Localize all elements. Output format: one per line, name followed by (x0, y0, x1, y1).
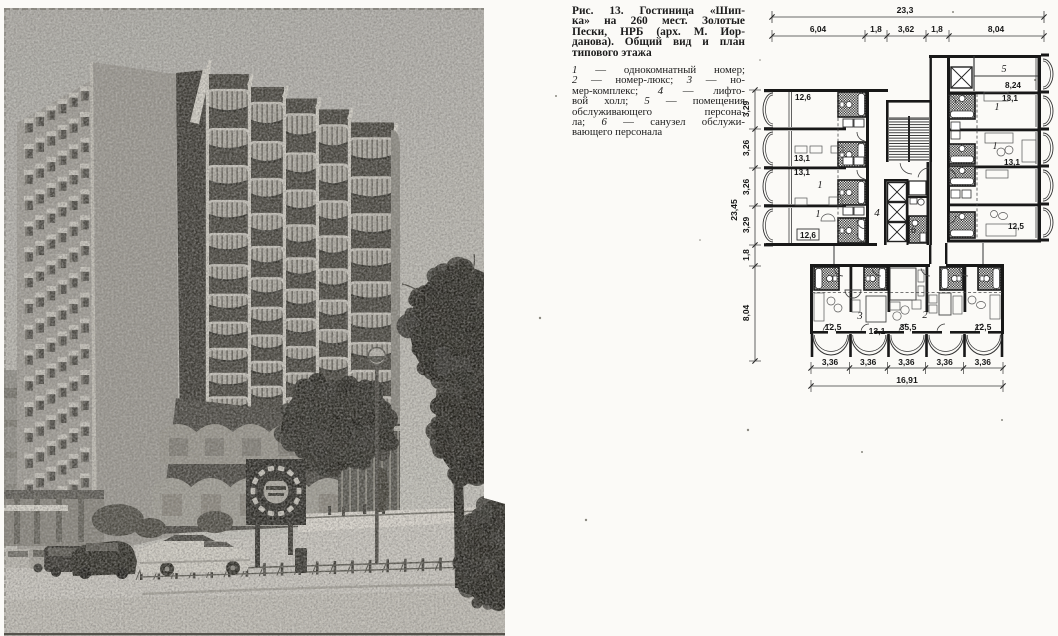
svg-text:4: 4 (874, 207, 880, 219)
svg-text:8,04: 8,04 (988, 24, 1005, 34)
svg-text:3,36: 3,36 (822, 357, 839, 367)
svg-text:1: 1 (995, 102, 1000, 113)
svg-text:3,29: 3,29 (741, 101, 751, 118)
svg-text:1,8: 1,8 (931, 24, 943, 34)
svg-text:3,26: 3,26 (741, 179, 751, 196)
svg-text:8,24: 8,24 (1005, 81, 1021, 90)
svg-text:12,6: 12,6 (800, 231, 816, 240)
svg-text:3,36: 3,36 (936, 357, 953, 367)
svg-text:6,04: 6,04 (810, 24, 827, 34)
svg-text:13,1: 13,1 (869, 326, 886, 336)
svg-text:1,8: 1,8 (741, 249, 751, 261)
svg-text:1,8: 1,8 (870, 24, 882, 34)
svg-text:23,3: 23,3 (897, 5, 914, 15)
svg-text:16,91: 16,91 (896, 375, 918, 385)
svg-text:1: 1 (816, 209, 821, 220)
svg-text:13,1: 13,1 (1004, 158, 1020, 167)
svg-text:3,62: 3,62 (898, 24, 915, 34)
svg-text:3,29: 3,29 (741, 217, 751, 234)
svg-text:3,36: 3,36 (898, 357, 915, 367)
svg-text:3,36: 3,36 (860, 357, 877, 367)
svg-text:35,5: 35,5 (900, 322, 917, 332)
svg-text:12,6: 12,6 (795, 93, 811, 102)
svg-text:13,1: 13,1 (794, 168, 810, 177)
svg-text:3,36: 3,36 (975, 357, 992, 367)
svg-text:1: 1 (818, 180, 823, 191)
svg-text:2: 2 (922, 310, 928, 321)
svg-text:6: 6 (911, 225, 916, 236)
svg-text:23,45: 23,45 (729, 199, 739, 221)
svg-text:8,04: 8,04 (741, 305, 751, 322)
svg-text:1: 1 (993, 141, 998, 152)
svg-text:3: 3 (856, 311, 862, 322)
svg-text:13,1: 13,1 (794, 154, 810, 163)
svg-text:12,5: 12,5 (975, 322, 992, 332)
svg-text:5: 5 (1002, 64, 1007, 75)
svg-text:12,5: 12,5 (825, 322, 842, 332)
svg-text:13,1: 13,1 (1002, 94, 1018, 103)
svg-text:3,26: 3,26 (741, 140, 751, 157)
